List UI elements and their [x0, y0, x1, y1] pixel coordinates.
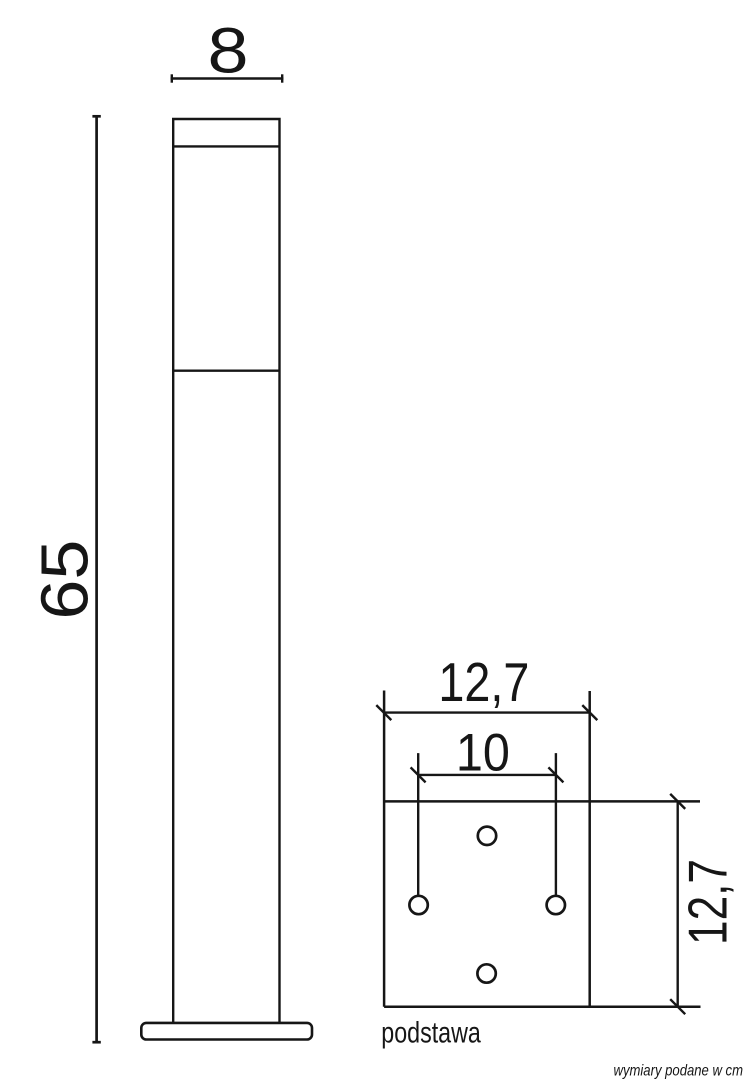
svg-text:12,7: 12,7	[438, 651, 529, 713]
svg-text:65: 65	[28, 540, 103, 620]
svg-text:podstawa: podstawa	[381, 1017, 481, 1050]
svg-text:wymiary podane w cm: wymiary podane w cm	[614, 1063, 744, 1080]
svg-text:8: 8	[208, 15, 249, 87]
svg-text:12,7: 12,7	[677, 859, 739, 945]
